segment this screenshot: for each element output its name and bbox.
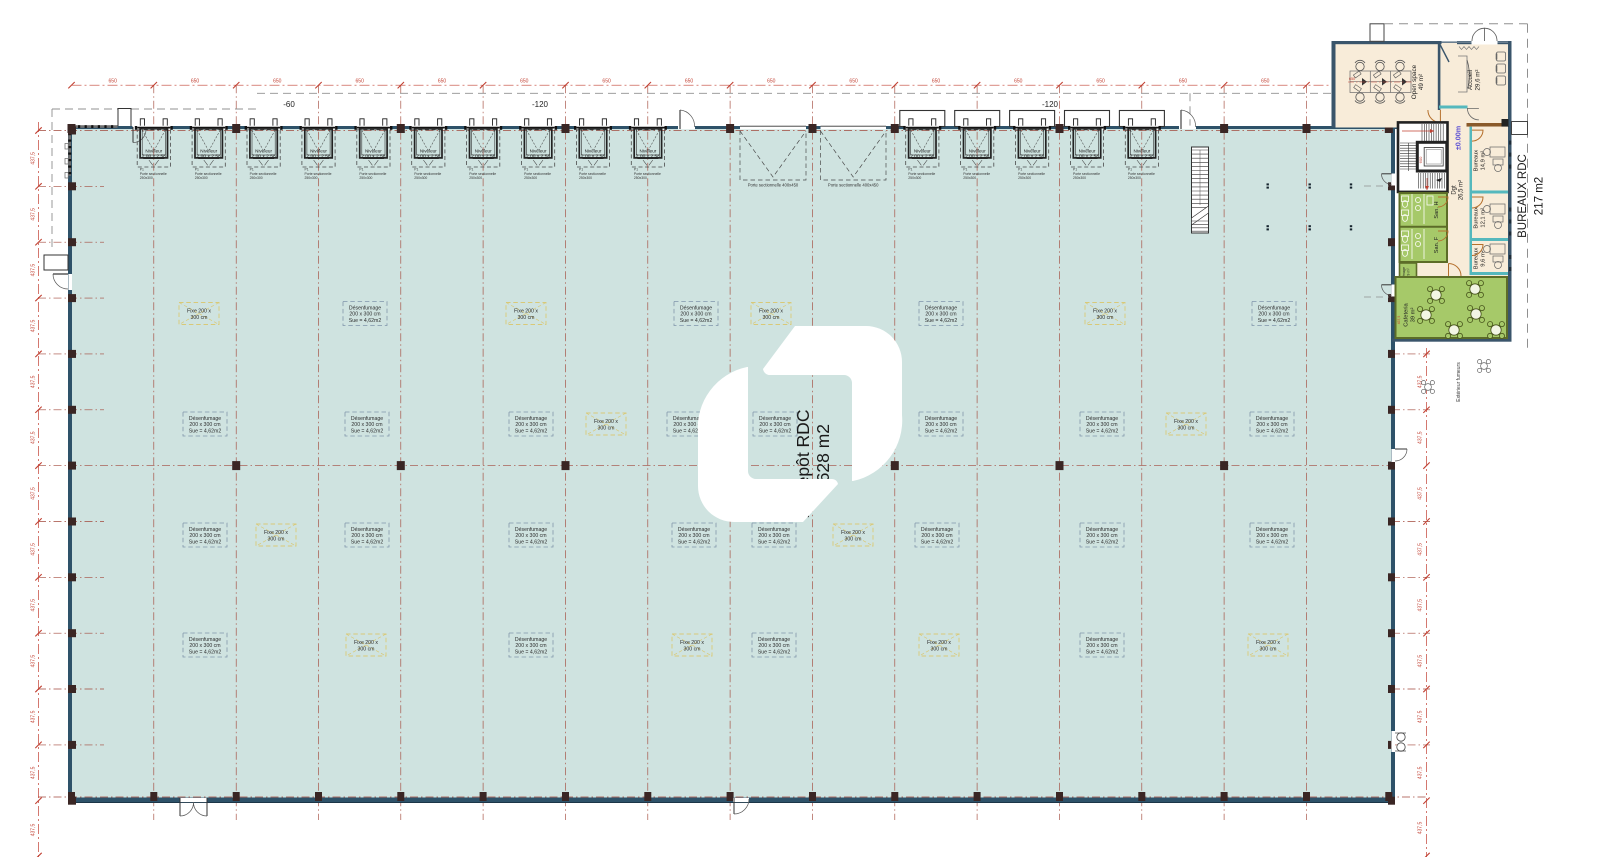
svg-text:Désenfumage: Désenfumage [680,306,712,312]
svg-text:Sue = 4,62m2: Sue = 4,62m2 [759,428,792,434]
svg-text:650: 650 [273,79,282,85]
svg-text:Désenfumage: Désenfumage [759,416,791,422]
svg-text:250x300: 250x300 [634,176,647,180]
svg-text:200 x 300 cm: 200 x 300 cm [1256,533,1287,539]
svg-text:437,5: 437,5 [31,824,37,837]
svg-text:Niveleur: Niveleur [145,149,162,154]
svg-text:200 x 300 cm: 200 x 300 cm [189,533,220,539]
svg-text:300 cm: 300 cm [930,646,947,652]
svg-text:200 x 300 cm: 200 x 300 cm [1086,533,1117,539]
svg-text:300 cm: 300 cm [517,315,534,321]
svg-text:650: 650 [932,79,941,85]
svg-text:Fixe 200 x: Fixe 200 x [264,530,288,536]
svg-text:Porte sectionnelle 400x450: Porte sectionnelle 400x450 [748,183,799,188]
svg-text:200 x 300 cm: 200 x 300 cm [351,422,382,428]
svg-text:250x300: 250x300 [908,176,921,180]
svg-text:Niveleur: Niveleur [255,149,272,154]
svg-text:300 cm: 300 cm [190,315,207,321]
svg-text:437,5: 437,5 [1418,543,1424,556]
svg-text:437,5: 437,5 [1418,599,1424,612]
svg-text:BUREAUX RDC: BUREAUX RDC [1517,154,1529,238]
svg-text:Niveleur: Niveleur [310,149,327,154]
svg-text:Niveleur: Niveleur [200,149,217,154]
svg-text:437,5: 437,5 [1418,766,1424,779]
svg-text:Fixe 200 x: Fixe 200 x [927,640,951,646]
svg-text:200 x 300 cm: 200 x 300 cm [758,533,789,539]
svg-text:Niveleur: Niveleur [1133,149,1150,154]
svg-text:250x300: 250x300 [524,176,537,180]
svg-text:650: 650 [520,79,529,85]
svg-text:Sue = 4,62m2: Sue = 4,62m2 [758,539,791,545]
svg-text:Sue = 4,62m2: Sue = 4,62m2 [1258,318,1291,324]
svg-text:250x300: 250x300 [195,176,208,180]
svg-text:Fixe 200 x: Fixe 200 x [1174,419,1198,425]
svg-text:650: 650 [109,79,118,85]
svg-text:200 x 300 cm: 200 x 300 cm [1086,643,1117,649]
svg-text:437,5: 437,5 [1418,487,1424,500]
svg-text:437,5: 437,5 [31,766,37,779]
svg-text:Désenfumage: Désenfumage [1258,306,1290,312]
svg-text:Désenfumage: Désenfumage [1086,416,1118,422]
svg-text:437,5: 437,5 [31,208,37,221]
svg-text:Fixe 200 x: Fixe 200 x [759,309,783,315]
svg-text:Sue = 4,62m2: Sue = 4,62m2 [921,539,954,545]
svg-text:437,5: 437,5 [31,431,37,444]
svg-text:200 x 300 cm: 200 x 300 cm [1086,422,1117,428]
svg-text:Niveleur: Niveleur [1079,149,1096,154]
svg-text:200 x 300 cm: 200 x 300 cm [1256,422,1287,428]
svg-text:437,5: 437,5 [31,152,37,165]
svg-text:600: 600 [1418,156,1423,163]
svg-text:300 cm: 300 cm [762,315,779,321]
svg-text:San. F: San. F [1434,236,1440,253]
svg-text:Sue = 4,62m2: Sue = 4,62m2 [925,428,958,434]
svg-text:Accueil: Accueil [1467,70,1474,90]
svg-text:Sue = 4,62m2: Sue = 4,62m2 [925,318,958,324]
svg-text:300 cm: 300 cm [357,646,374,652]
svg-text:Sue = 4,62m2: Sue = 4,62m2 [680,318,713,324]
svg-text:437,5: 437,5 [1397,316,1401,325]
svg-text:200 x 300 cm: 200 x 300 cm [189,422,220,428]
svg-text:200 x 300 cm: 200 x 300 cm [189,643,220,649]
svg-text:Désenfumage: Désenfumage [758,527,790,533]
svg-text:Désenfumage: Désenfumage [351,527,383,533]
svg-text:Sue = 4,62m2: Sue = 4,62m2 [758,649,791,655]
svg-text:650: 650 [1014,79,1023,85]
svg-text:437,5: 437,5 [1418,822,1424,835]
svg-text:Fixe 200 x: Fixe 200 x [841,530,865,536]
svg-text:650: 650 [1261,79,1270,85]
svg-text:200 x 300 cm: 200 x 300 cm [759,422,790,428]
svg-text:Sue = 4,62m2: Sue = 4,62m2 [1086,649,1119,655]
svg-text:250x300: 250x300 [305,176,318,180]
svg-text:Bureaux: Bureaux [1474,150,1480,172]
svg-text:200 x 300 cm: 200 x 300 cm [515,422,546,428]
svg-text:200 x 300 cm: 200 x 300 cm [1258,312,1289,318]
svg-text:650: 650 [438,79,447,85]
svg-text:Sue = 4,62m2: Sue = 4,62m2 [1256,428,1289,434]
svg-text:437,5: 437,5 [31,710,37,723]
svg-text:250x300: 250x300 [359,176,372,180]
svg-text:Niveleur: Niveleur [475,149,492,154]
svg-text:437,5: 437,5 [31,543,37,556]
svg-text:-120: -120 [1042,100,1059,109]
svg-text:39 m²: 39 m² [1411,308,1417,323]
svg-text:Fixe 200 x: Fixe 200 x [680,640,704,646]
svg-text:Désenfumage: Désenfumage [925,416,957,422]
svg-text:200 x 300 cm: 200 x 300 cm [515,533,546,539]
svg-text:Niveleur: Niveleur [420,149,437,154]
svg-text:200 x 300 cm: 200 x 300 cm [680,312,711,318]
svg-text:Désenfumage: Désenfumage [349,306,381,312]
svg-text:300 cm: 300 cm [1259,646,1276,652]
svg-text:49 m²: 49 m² [1418,74,1425,90]
svg-text:300 cm: 300 cm [683,646,700,652]
svg-text:Désenfumage: Désenfumage [678,527,710,533]
svg-text:200 x 300 cm: 200 x 300 cm [758,643,789,649]
svg-text:217 m2: 217 m2 [1534,177,1546,215]
svg-text:650: 650 [1179,79,1188,85]
svg-text:650: 650 [685,79,694,85]
svg-text:Sue = 4,62m2: Sue = 4,62m2 [351,539,384,545]
svg-text:Fixe 200 x: Fixe 200 x [187,309,211,315]
svg-text:Sue = 4,62m2: Sue = 4,62m2 [1086,539,1119,545]
svg-text:Désenfumage: Désenfumage [189,637,221,643]
svg-text:Sue = 4,62m2: Sue = 4,62m2 [349,318,382,324]
svg-text:Désenfumage: Désenfumage [189,416,221,422]
svg-text:Sue = 4,62m2: Sue = 4,62m2 [1256,539,1289,545]
svg-text:300 cm: 300 cm [597,425,614,431]
svg-text:Désenfumage: Désenfumage [515,637,547,643]
svg-text:Sue = 4,62m2: Sue = 4,62m2 [515,539,548,545]
svg-text:650: 650 [602,79,611,85]
svg-text:Fixe 200 x: Fixe 200 x [1093,309,1117,315]
svg-text:Niveleur: Niveleur [530,149,547,154]
svg-text:250x300: 250x300 [1128,176,1141,180]
svg-text:300 cm: 300 cm [1096,315,1113,321]
svg-text:Bureaux: Bureaux [1474,248,1480,270]
svg-text:9,6 m²: 9,6 m² [1481,250,1487,266]
svg-text:250x300: 250x300 [1018,176,1031,180]
svg-text:Sue = 4,62m2: Sue = 4,62m2 [515,649,548,655]
svg-text:Cafeteria: Cafeteria [1404,302,1410,326]
svg-text:437,5: 437,5 [1418,431,1424,444]
svg-text:200 x 300 cm: 200 x 300 cm [925,312,956,318]
svg-text:14,9 m²: 14,9 m² [1481,151,1487,171]
svg-text:437,5: 437,5 [31,599,37,612]
svg-text:250x300: 250x300 [414,176,427,180]
svg-text:Désenfumage: Désenfumage [1256,416,1288,422]
svg-text:Désenfumage: Désenfumage [758,637,790,643]
svg-text:250x300: 250x300 [579,176,592,180]
svg-text:650: 650 [191,79,200,85]
svg-text:Niveleur: Niveleur [585,149,602,154]
svg-text:437,5: 437,5 [31,655,37,668]
svg-text:Sue = 4,62m2: Sue = 4,62m2 [189,649,222,655]
svg-text:Sue = 4,62m2: Sue = 4,62m2 [351,428,384,434]
svg-text:650: 650 [767,79,776,85]
svg-text:Désenfumage: Désenfumage [351,416,383,422]
svg-text:Sue = 4,62m2: Sue = 4,62m2 [1086,428,1119,434]
svg-text:250x300: 250x300 [469,176,482,180]
svg-text:Désenfumage: Désenfumage [515,527,547,533]
svg-text:250x300: 250x300 [140,176,153,180]
svg-text:437,5: 437,5 [31,320,37,333]
svg-text:Fixe 200 x: Fixe 200 x [594,419,618,425]
svg-text:Sue = 4,62m2: Sue = 4,62m2 [678,539,711,545]
svg-text:250x300: 250x300 [250,176,263,180]
svg-text:Désenfumage: Désenfumage [1086,527,1118,533]
svg-text:San. H: San. H [1434,201,1440,218]
svg-text:437,5: 437,5 [1418,710,1424,723]
svg-text:650: 650 [849,79,858,85]
svg-text:300 cm: 300 cm [1177,425,1194,431]
svg-text:200 x 300 cm: 200 x 300 cm [925,422,956,428]
svg-text:Niveleur: Niveleur [1024,149,1041,154]
svg-text:26,5 m²: 26,5 m² [1459,180,1465,200]
svg-text:Sue = 4,62m2: Sue = 4,62m2 [515,428,548,434]
svg-text:Désenfumage: Désenfumage [189,527,221,533]
svg-text:300 cm: 300 cm [267,536,284,542]
svg-text:Fixe 200 x: Fixe 200 x [1256,640,1280,646]
svg-text:200 x 300 cm: 200 x 300 cm [349,312,380,318]
svg-text:Dgt: Dgt [1452,185,1458,195]
svg-text:Fixe 200 x: Fixe 200 x [354,640,378,646]
svg-text:-60: -60 [283,100,295,109]
svg-text:Désenfumage: Désenfumage [515,416,547,422]
svg-text:Fixe 200 x: Fixe 200 x [514,309,538,315]
svg-text:29,6 m²: 29,6 m² [1475,70,1482,91]
svg-text:200 x 300 cm: 200 x 300 cm [921,533,952,539]
svg-text:437,5: 437,5 [31,375,37,388]
svg-text:437,5: 437,5 [1418,655,1424,668]
svg-text:Sue = 4,62m2: Sue = 4,62m2 [189,428,222,434]
svg-text:437,5: 437,5 [31,487,37,500]
svg-text:12,1 m²: 12,1 m² [1481,208,1487,228]
svg-text:Désenfumage: Désenfumage [1256,527,1288,533]
svg-text:±0.00m: ±0.00m [1454,126,1463,150]
svg-text:250x300: 250x300 [1073,176,1086,180]
svg-text:300 cm: 300 cm [844,536,861,542]
svg-text:-120: -120 [532,100,549,109]
svg-text:Désenfumage: Désenfumage [925,306,957,312]
svg-text:250x300: 250x300 [963,176,976,180]
svg-text:Désenfumage: Désenfumage [921,527,953,533]
svg-text:Porte sectionnelle 400x450: Porte sectionnelle 400x450 [828,183,879,188]
svg-text:Niveleur: Niveleur [969,149,986,154]
svg-text:650: 650 [1349,77,1355,81]
svg-text:Niveleur: Niveleur [914,149,931,154]
svg-text:200 x 300 cm: 200 x 300 cm [351,533,382,539]
svg-text:Bureaux: Bureaux [1474,207,1480,229]
svg-text:Niveleur: Niveleur [639,149,656,154]
svg-text:650: 650 [356,79,365,85]
svg-text:Niveleur: Niveleur [365,149,382,154]
svg-text:Open space: Open space [1411,64,1418,99]
svg-text:437,5: 437,5 [31,264,37,277]
svg-text:200 x 300 cm: 200 x 300 cm [515,643,546,649]
svg-text:200 x 300 cm: 200 x 300 cm [678,533,709,539]
svg-text:Désenfumage: Désenfumage [1086,637,1118,643]
svg-text:650: 650 [1096,79,1105,85]
svg-text:Sue = 4,62m2: Sue = 4,62m2 [189,539,222,545]
svg-text:Extérieur fumeurs: Extérieur fumeurs [1456,362,1462,402]
